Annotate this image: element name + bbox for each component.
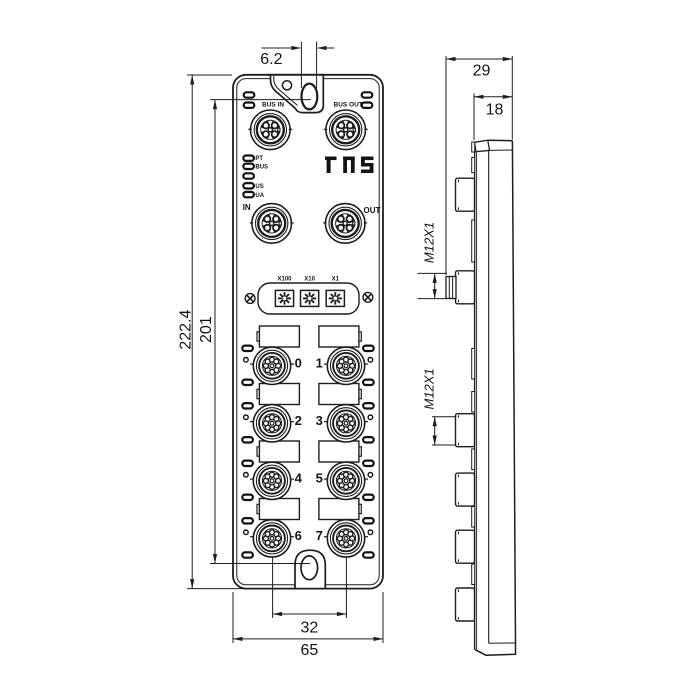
- svg-text:BUS IN: BUS IN: [262, 101, 284, 108]
- svg-text:32: 32: [301, 619, 319, 636]
- svg-text:201: 201: [198, 316, 215, 343]
- svg-text:X1: X1: [332, 277, 340, 283]
- svg-text:18: 18: [486, 102, 504, 119]
- svg-text:222.4: 222.4: [177, 309, 194, 349]
- svg-text:BUS OUT: BUS OUT: [334, 101, 363, 108]
- svg-text:6.2: 6.2: [260, 51, 282, 68]
- svg-text:BUS: BUS: [255, 165, 268, 171]
- svg-text:X10: X10: [304, 277, 315, 283]
- svg-text:65: 65: [301, 642, 319, 659]
- svg-text:7: 7: [316, 528, 323, 543]
- svg-text:1: 1: [316, 355, 323, 370]
- svg-text:M12X1: M12X1: [422, 222, 437, 263]
- svg-text:PT: PT: [255, 156, 263, 162]
- svg-text:OUT: OUT: [364, 206, 381, 215]
- svg-text:X100: X100: [277, 277, 292, 283]
- svg-text:6: 6: [295, 528, 302, 543]
- svg-text:0: 0: [295, 355, 302, 370]
- svg-text:4: 4: [295, 470, 303, 485]
- svg-text:3: 3: [316, 413, 323, 428]
- svg-text:29: 29: [473, 63, 491, 80]
- svg-text:M12X1: M12X1: [422, 368, 437, 409]
- svg-text:IN: IN: [243, 203, 251, 212]
- svg-text:2: 2: [295, 413, 302, 428]
- svg-text:5: 5: [316, 470, 323, 485]
- svg-text:US: US: [255, 184, 263, 190]
- svg-text:UA: UA: [255, 193, 264, 199]
